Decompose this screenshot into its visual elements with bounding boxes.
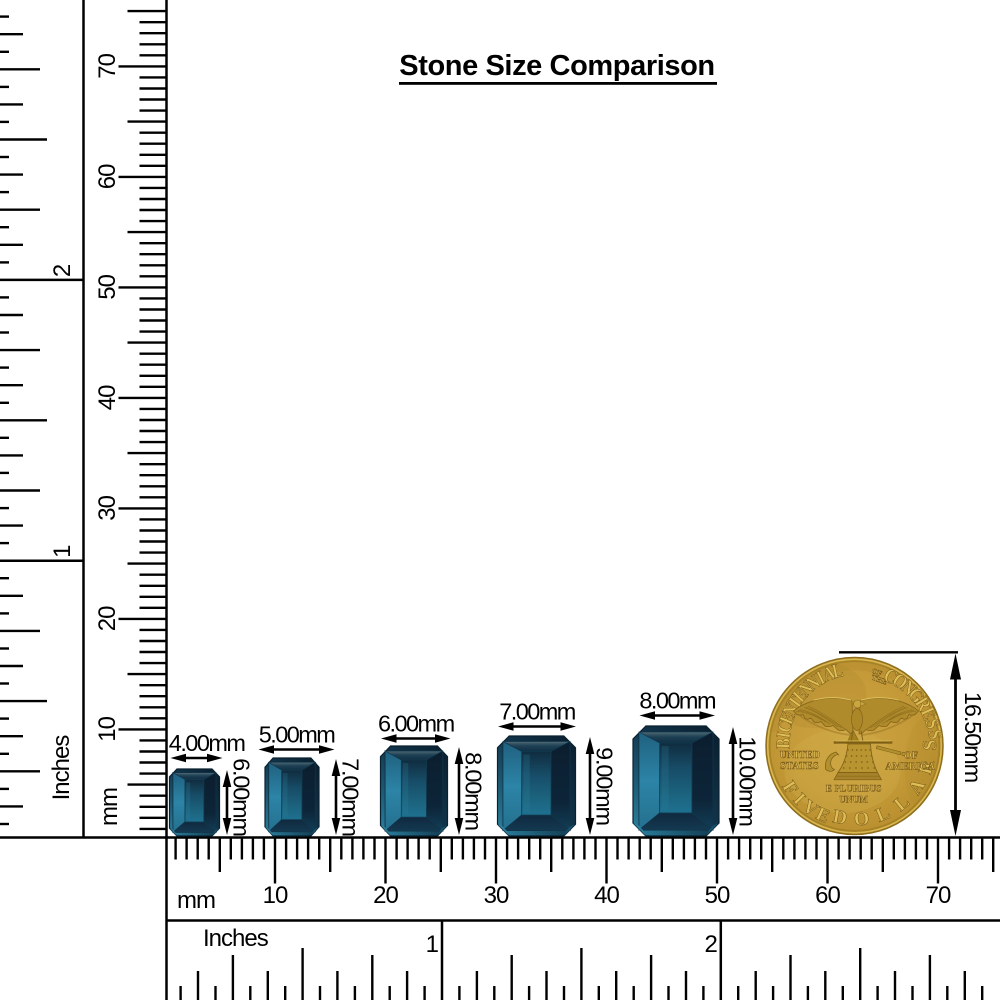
svg-text:UNUM: UNUM: [839, 795, 868, 805]
svg-text:60: 60: [815, 882, 840, 909]
svg-text:2: 2: [49, 264, 76, 277]
svg-text:20: 20: [373, 882, 398, 909]
svg-text:4.00mm: 4.00mm: [169, 730, 246, 756]
svg-text:20: 20: [94, 606, 121, 631]
svg-text:70: 70: [926, 882, 951, 909]
svg-text:OF: OF: [904, 751, 918, 762]
svg-text:50: 50: [94, 274, 121, 299]
svg-text:UNITED: UNITED: [780, 750, 821, 761]
svg-text:50: 50: [705, 882, 730, 909]
svg-text:70: 70: [94, 53, 121, 78]
svg-text:40: 40: [94, 385, 121, 410]
svg-text:8.00mm: 8.00mm: [461, 752, 487, 830]
svg-text:1: 1: [426, 931, 439, 958]
svg-text:6.00mm: 6.00mm: [229, 758, 255, 836]
svg-text:STATES: STATES: [780, 761, 819, 772]
svg-text:10: 10: [94, 716, 121, 741]
svg-text:AMERICA: AMERICA: [885, 762, 935, 773]
svg-text:mm: mm: [177, 887, 215, 914]
svg-text:2: 2: [704, 931, 717, 958]
svg-text:60: 60: [94, 164, 121, 189]
svg-text:30: 30: [94, 495, 121, 520]
svg-text:O: O: [853, 808, 870, 830]
svg-text:Stone Size Comparison: Stone Size Comparison: [399, 50, 715, 82]
svg-text:7.00mm: 7.00mm: [499, 699, 576, 725]
svg-text:Inches: Inches: [203, 925, 269, 952]
svg-text:30: 30: [484, 882, 509, 909]
svg-text:Inches: Inches: [48, 735, 75, 801]
svg-text:16.50mm: 16.50mm: [960, 692, 986, 783]
svg-text:10: 10: [263, 882, 288, 909]
svg-text:40: 40: [594, 882, 619, 909]
svg-text:10.00mm: 10.00mm: [735, 736, 761, 826]
svg-text:8.00mm: 8.00mm: [639, 688, 716, 714]
svg-text:9.00mm: 9.00mm: [592, 747, 618, 825]
svg-text:S: S: [920, 739, 941, 750]
svg-text:5.00mm: 5.00mm: [259, 722, 336, 748]
svg-text:E PLURIBUS: E PLURIBUS: [826, 784, 882, 794]
svg-text:mm: mm: [96, 788, 123, 826]
svg-text:6.00mm: 6.00mm: [378, 711, 455, 737]
svg-text:7.00mm: 7.00mm: [338, 758, 364, 836]
svg-text:1: 1: [49, 545, 76, 558]
